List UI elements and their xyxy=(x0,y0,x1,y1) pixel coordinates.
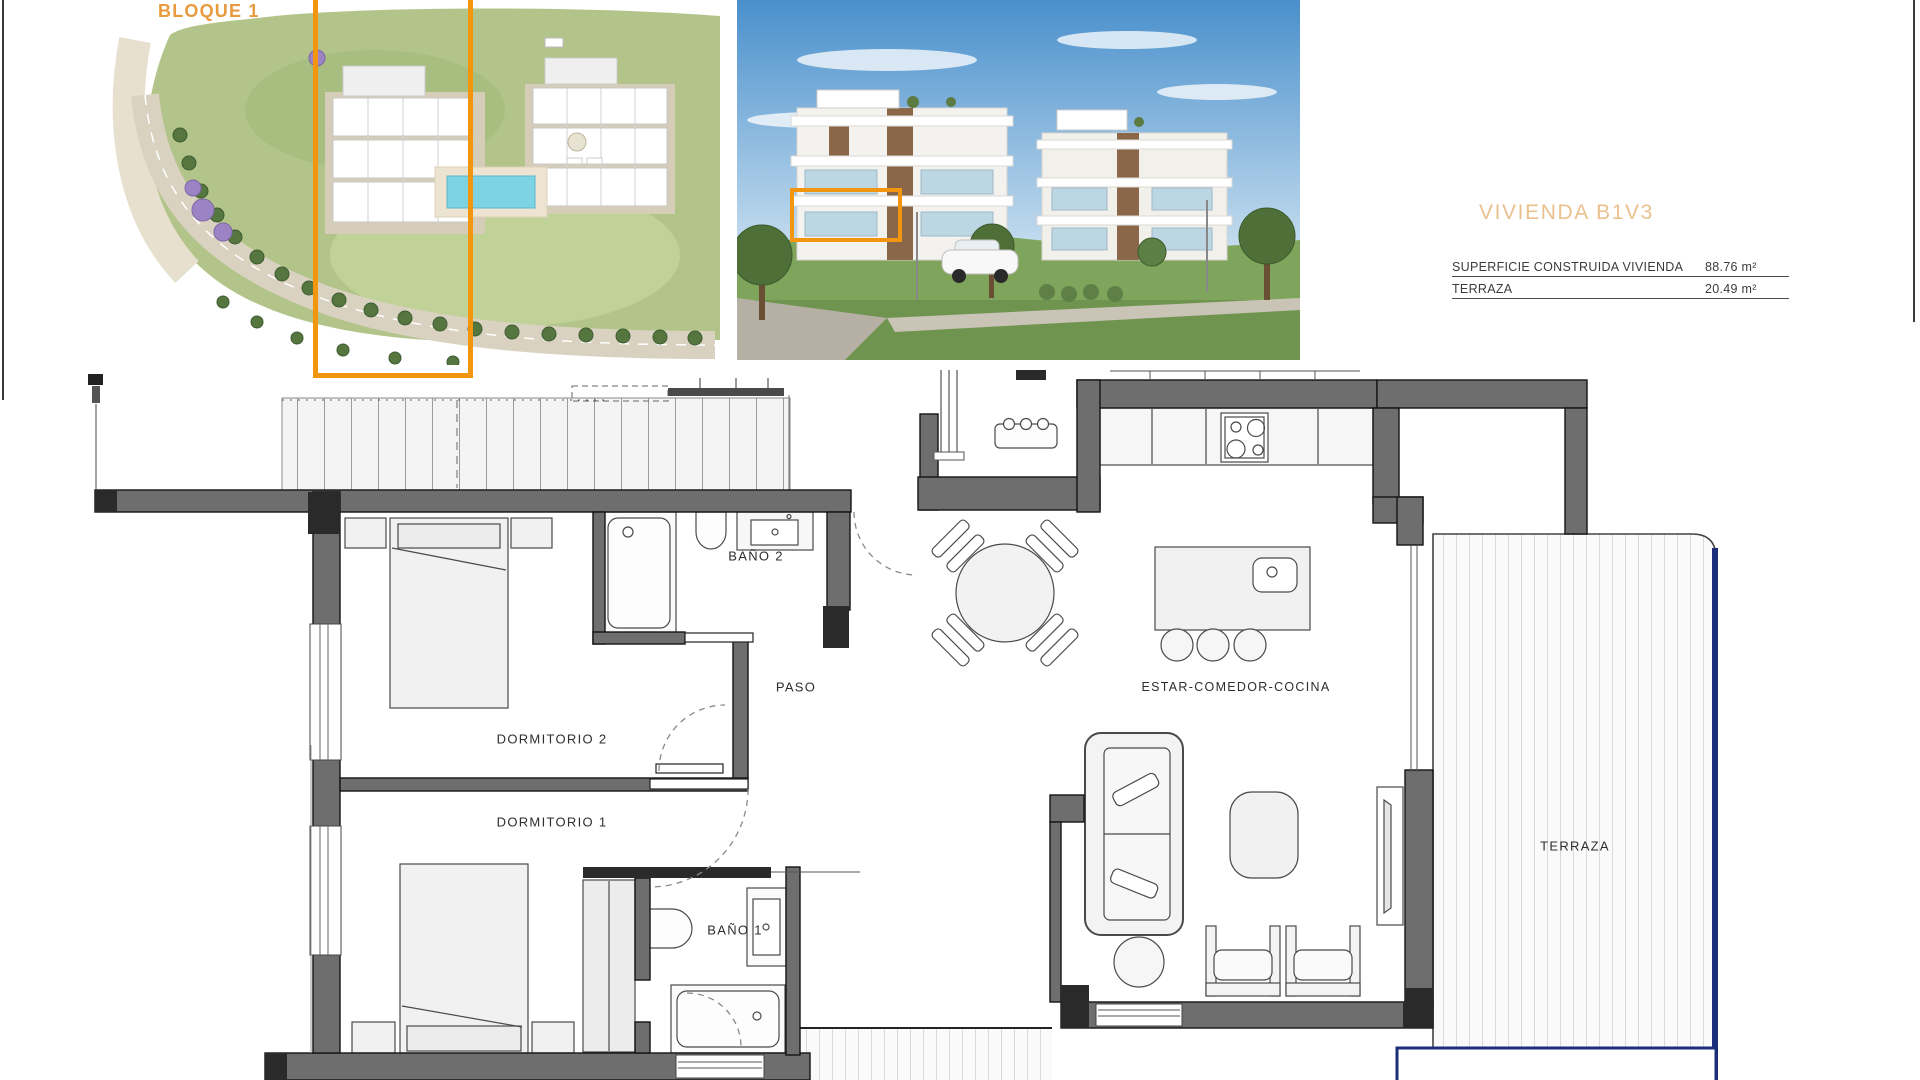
room-label-paso: PASO xyxy=(776,680,816,695)
room-label-bano-1: BAÑO 1 xyxy=(707,923,762,938)
room-label-estar-comedor-cocina: ESTAR-COMEDOR-COCINA xyxy=(1142,680,1331,694)
room-label-terraza: TERRAZA xyxy=(1540,839,1610,854)
doors xyxy=(650,512,917,1047)
plan-sheet: BLOQUE 1 VIVIENDA B1V3 SUPERFICIE CONSTR… xyxy=(0,0,1920,1080)
terrace-pool xyxy=(1397,1048,1716,1080)
pergola-deck xyxy=(282,378,790,490)
lower-deck xyxy=(800,1028,1052,1080)
room-label-dormitorio-1: DORMITORIO 1 xyxy=(497,815,608,830)
terrace-area xyxy=(1433,534,1718,1080)
floor-plan-drawing xyxy=(0,0,1920,1080)
room-label-dormitorio-2: DORMITORIO 2 xyxy=(497,732,608,747)
room-label-bano-2: BAÑO 2 xyxy=(728,549,783,564)
